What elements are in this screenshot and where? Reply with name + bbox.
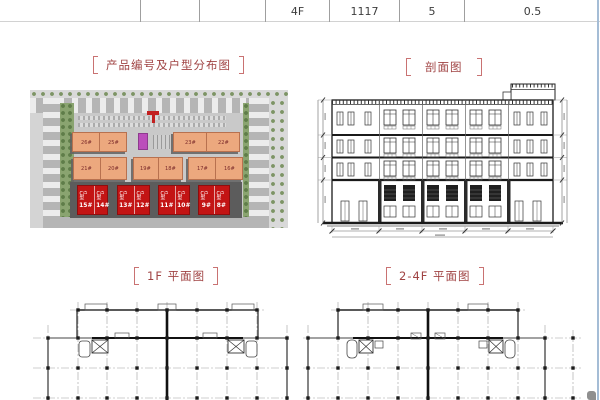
building-9: C户型9# bbox=[199, 186, 214, 214]
building-15: C户型15# bbox=[78, 186, 94, 214]
plan1f-grid bbox=[33, 302, 287, 400]
building-pair-9-8: C户型9# C户型8# bbox=[198, 185, 230, 215]
plan-1f-drawing bbox=[15, 300, 295, 400]
title-plan1f: 1F 平面图 bbox=[134, 267, 218, 285]
watermark-fragment bbox=[587, 391, 596, 400]
building-13: C户型13# bbox=[118, 186, 134, 214]
building-11: C户型11# bbox=[159, 186, 175, 214]
left-bracket-icon bbox=[93, 56, 98, 74]
table-cell-5: 5 bbox=[400, 0, 465, 22]
title-section-label: 剖面图 bbox=[425, 59, 463, 75]
trees-right bbox=[243, 103, 249, 217]
building-18: 18# bbox=[158, 158, 183, 179]
left-bracket-icon bbox=[134, 267, 139, 285]
title-siteplan-label: 产品编号及户型分布图 bbox=[106, 57, 231, 73]
building-8: C户型8# bbox=[214, 186, 230, 214]
entrance-gate-icon bbox=[147, 111, 159, 125]
plan-24f-drawing bbox=[303, 300, 593, 400]
table-cell-2 bbox=[141, 0, 200, 22]
building-14: C户型14# bbox=[94, 186, 111, 214]
building-23: 23# bbox=[174, 133, 206, 151]
building-block-17-16: 17# 16# bbox=[188, 157, 243, 180]
plan24f-walls bbox=[308, 304, 545, 400]
building-pair-11-10: C户型11# C户型10# bbox=[158, 185, 190, 215]
road-right bbox=[249, 98, 269, 228]
right-bracket-icon bbox=[477, 58, 482, 76]
building-25: 25# bbox=[99, 133, 126, 151]
table-cell-3 bbox=[200, 0, 266, 22]
building-17: 17# bbox=[189, 158, 215, 179]
siteplan-image: 26# 25# 23# 22# 21# 20# 19# 18# 17# 16# … bbox=[30, 90, 288, 228]
left-bracket-icon bbox=[386, 267, 391, 285]
building-26: 26# bbox=[73, 133, 99, 151]
left-bracket-icon bbox=[406, 58, 411, 76]
right-bracket-icon bbox=[239, 56, 244, 74]
plan24f-grid bbox=[303, 302, 581, 400]
building-10: C户型10# bbox=[175, 186, 192, 214]
table-cell-6: 0.5 bbox=[465, 0, 600, 22]
building-19: 19# bbox=[134, 158, 158, 179]
building-20: 20# bbox=[100, 158, 127, 179]
building-21: 21# bbox=[74, 158, 100, 179]
table-cell-floors: 4F bbox=[266, 0, 330, 22]
page: 4F 1117 5 0.5 产品编号及户型分布图 剖面图 1F 平面图 2-4F… bbox=[0, 0, 600, 400]
building-block-23-22: 23# 22# bbox=[173, 132, 240, 152]
title-plan24f-label: 2-4F 平面图 bbox=[399, 268, 471, 284]
title-section: 剖面图 bbox=[406, 58, 482, 76]
building-magenta bbox=[138, 133, 148, 150]
title-plan24f: 2-4F 平面图 bbox=[386, 267, 484, 285]
title-siteplan: 产品编号及户型分布图 bbox=[93, 56, 244, 74]
building-12: C户型12# bbox=[134, 186, 151, 214]
parking-lot bbox=[153, 135, 170, 149]
section-drawing bbox=[315, 82, 585, 240]
page-right-edge-line bbox=[597, 0, 599, 400]
building-block-26-25: 26# 25# bbox=[72, 132, 127, 152]
building-pair-15-14: C户型15# C户型14# bbox=[77, 185, 108, 215]
building-16: 16# bbox=[215, 158, 242, 179]
trees-far-right bbox=[269, 90, 288, 228]
road-left bbox=[43, 98, 60, 228]
table-cell-1 bbox=[0, 0, 141, 22]
building-block-21-20: 21# 20# bbox=[73, 157, 127, 180]
table-cell-area: 1117 bbox=[330, 0, 400, 22]
title-plan1f-label: 1F 平面图 bbox=[147, 268, 205, 284]
right-bracket-icon bbox=[479, 267, 484, 285]
plan24f-cores bbox=[347, 340, 515, 358]
right-bracket-icon bbox=[213, 267, 218, 285]
building-22: 22# bbox=[206, 133, 239, 151]
plan1f-walls bbox=[48, 304, 287, 400]
trees-top bbox=[30, 90, 288, 98]
plan24f-columns bbox=[306, 308, 574, 399]
building-block-19-18: 19# 18# bbox=[133, 157, 183, 180]
building-pair-13-12: C户型13# C户型12# bbox=[117, 185, 150, 215]
spec-table-row: 4F 1117 5 0.5 bbox=[0, 0, 600, 22]
road-bottom bbox=[43, 217, 269, 228]
